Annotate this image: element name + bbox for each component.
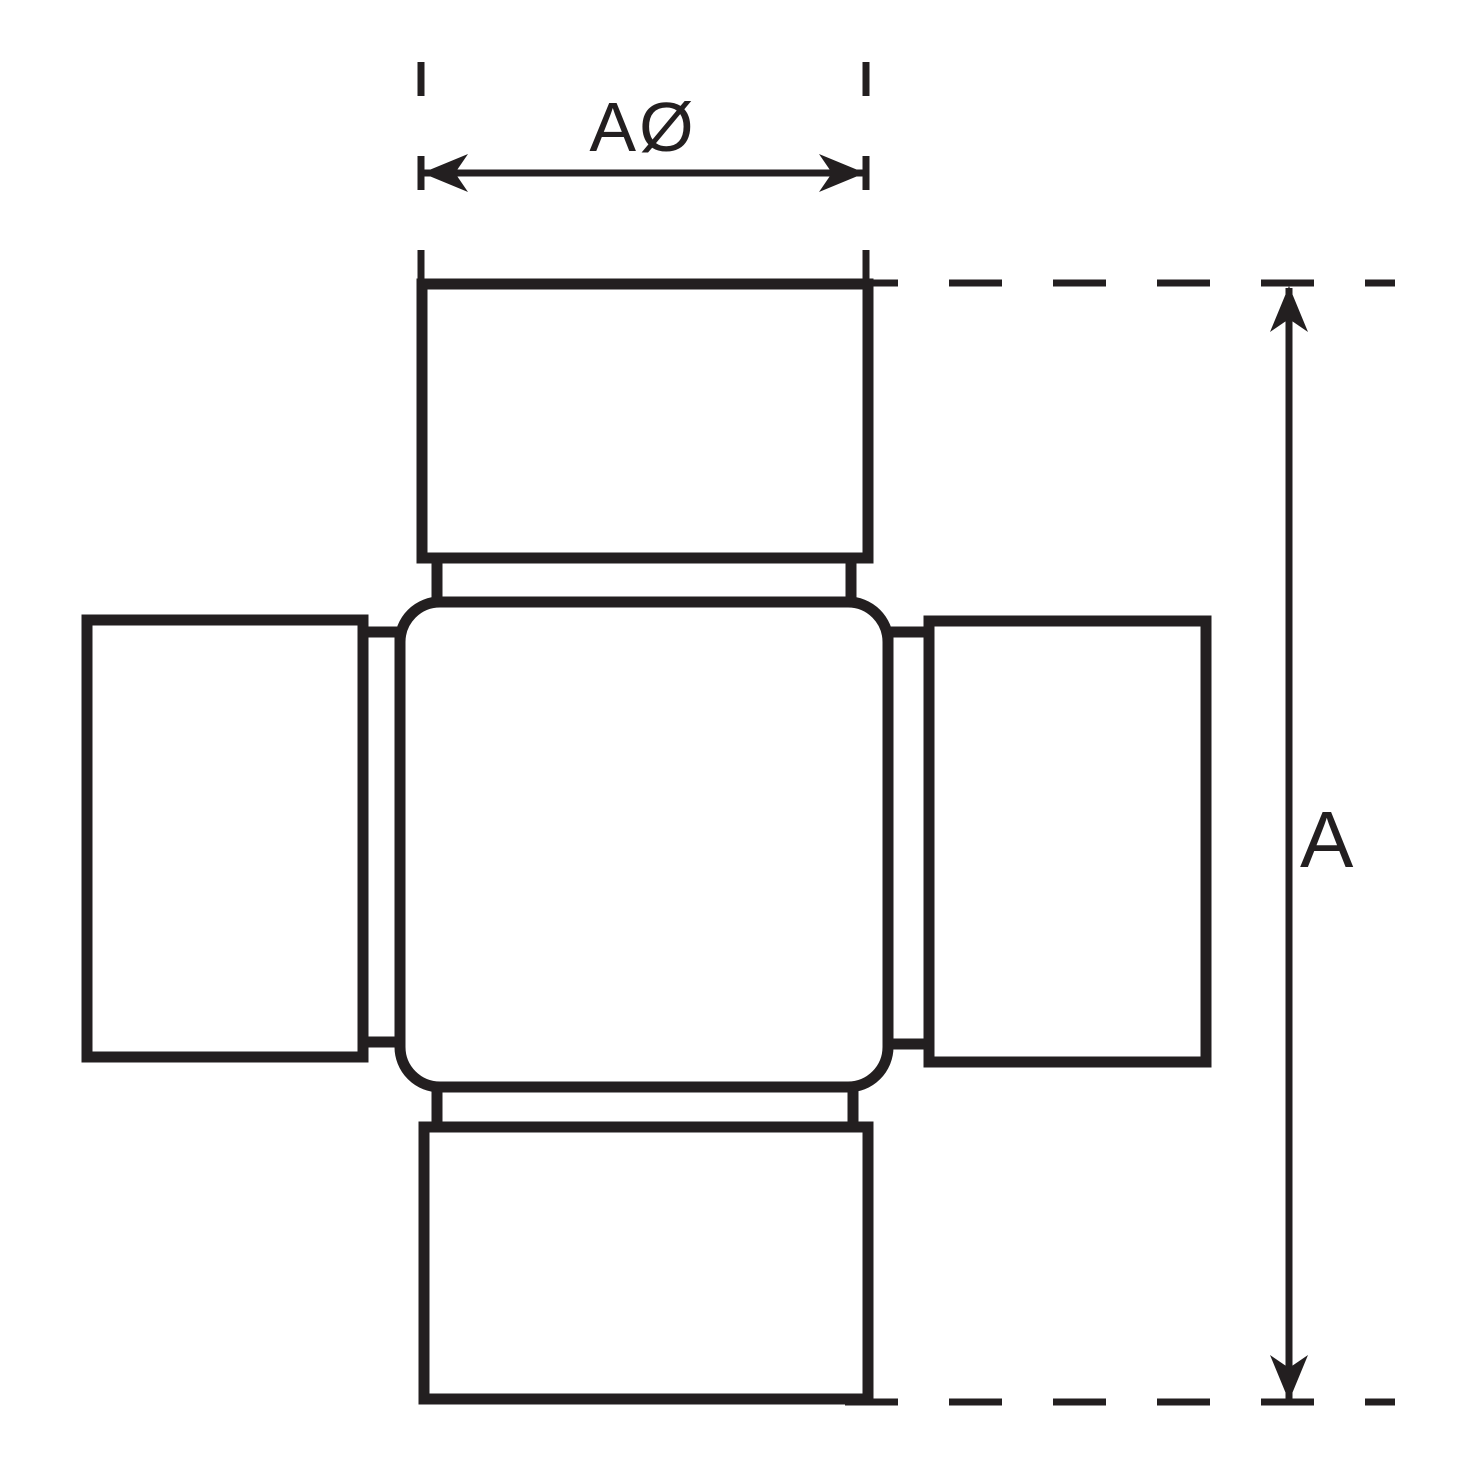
right-cap-step [888,632,929,1044]
top-bearing-cap [422,284,868,558]
width-dimension: AØ [421,62,866,284]
part-outline [87,284,1206,1399]
hub-fillet-bottom-right [848,1047,888,1087]
universal-joint-cross-diagram: AØ A [0,0,1474,1474]
hub-fillet-bottom-left [400,1047,440,1087]
width-dimension-label: AØ [589,88,696,166]
right-bearing-cap [929,621,1206,1062]
hub-fillet-top-left [400,602,440,642]
bottom-cap-step [437,1087,853,1127]
left-bearing-cap [87,620,363,1057]
bottom-bearing-cap [424,1127,868,1399]
hub-fillet-top-right [848,602,888,642]
top-cap-step [437,558,851,602]
height-dimension-label: A [1300,795,1354,884]
left-cap-step [363,632,400,1042]
